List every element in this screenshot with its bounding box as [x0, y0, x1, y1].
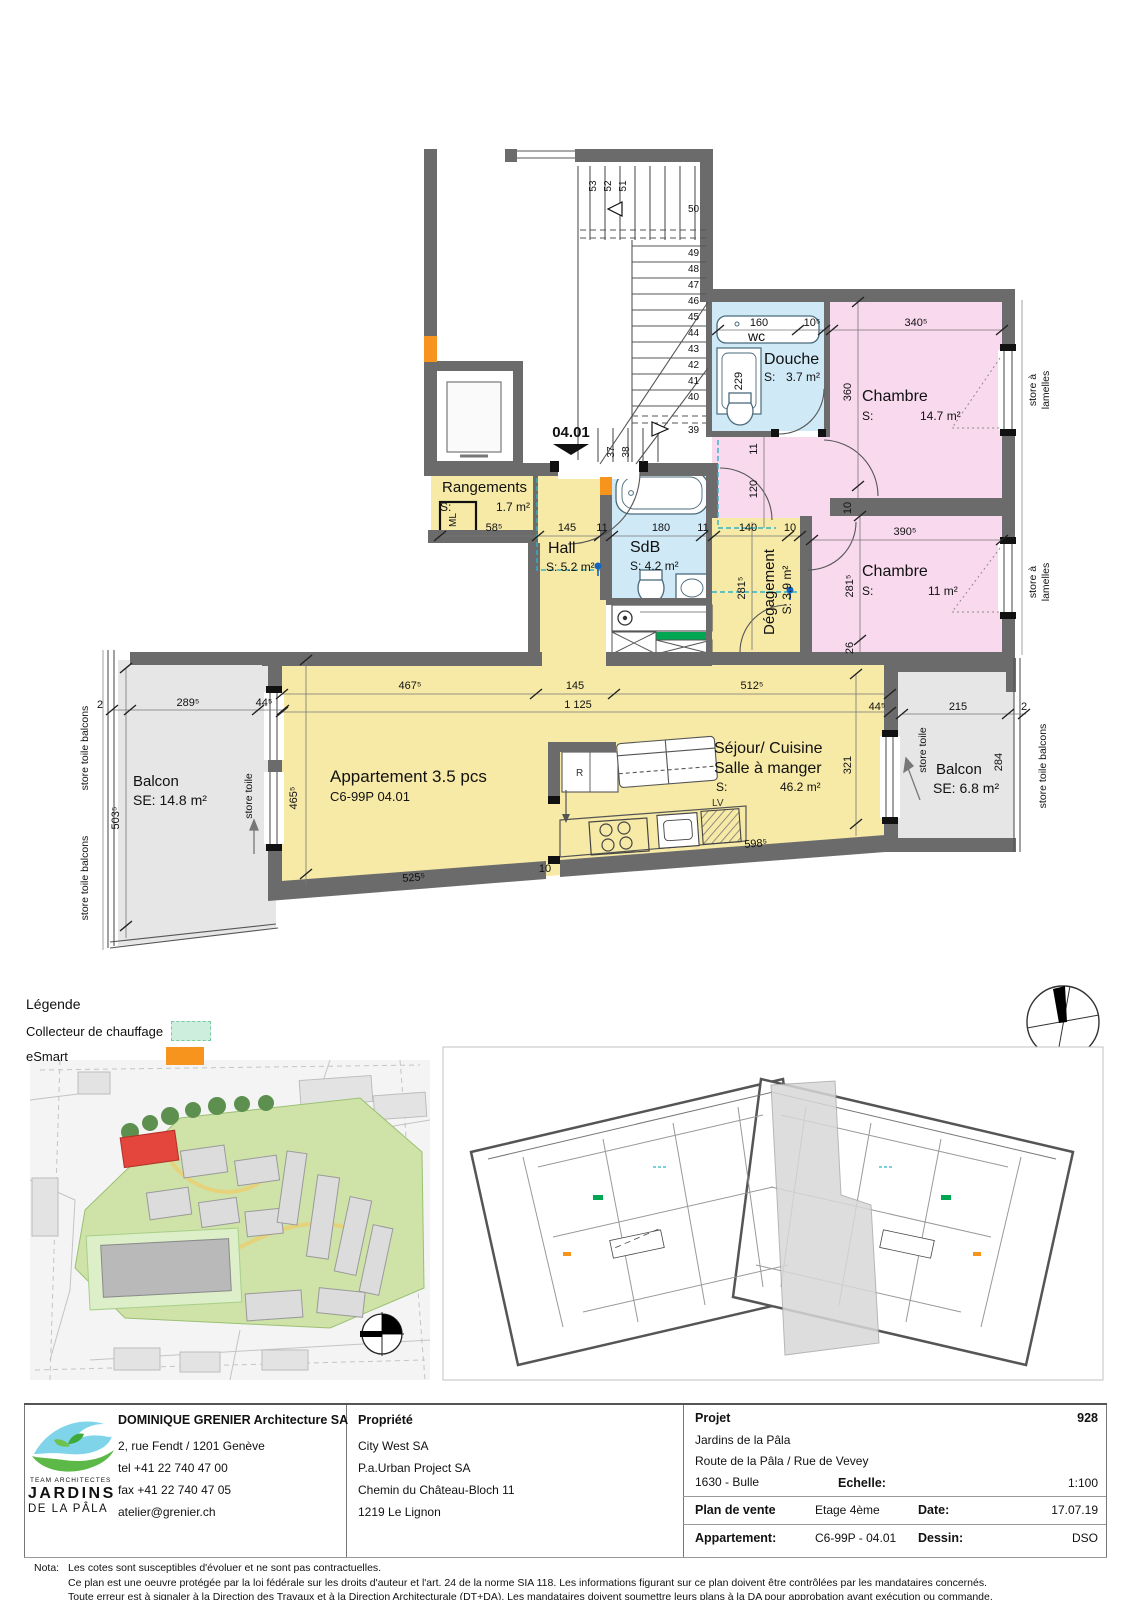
- architect-name: DOMINIQUE GRENIER Architecture SA: [118, 1414, 348, 1427]
- svg-text:45: 45: [688, 312, 700, 323]
- site-plan: [30, 1060, 430, 1380]
- etage-value: Etage 4ème: [815, 1504, 880, 1516]
- svg-text:43: 43: [688, 344, 700, 355]
- svg-text:Douche: Douche: [764, 351, 819, 368]
- hall-floor: [533, 463, 606, 655]
- owner-line: City West SA: [358, 1440, 428, 1452]
- svg-text:C6-99P 04.01: C6-99P 04.01: [330, 789, 410, 804]
- svg-text:44⁵: 44⁵: [869, 701, 886, 713]
- svg-text:Chambre: Chambre: [862, 563, 928, 580]
- date-value: 17.07.19: [1000, 1504, 1098, 1516]
- legend-title: Légende: [26, 996, 211, 1012]
- echelle-value: 1:100: [1000, 1477, 1098, 1489]
- svg-text:S:: S:: [764, 370, 775, 384]
- svg-text:42: 42: [688, 360, 700, 371]
- anteroom-floor: [712, 431, 830, 518]
- svg-text:503⁵: 503⁵: [110, 807, 122, 830]
- svg-text:10⁵: 10⁵: [804, 317, 821, 329]
- svg-text:40: 40: [688, 392, 700, 403]
- building-overview: [443, 1047, 1103, 1380]
- svg-text:S: 3.9 m²: S: 3.9 m²: [780, 566, 794, 615]
- svg-text:Dégagement: Dégagement: [761, 548, 778, 635]
- entry-arrow-icon: [553, 444, 589, 455]
- svg-text:Balcon: Balcon: [936, 761, 982, 778]
- architect-tel: tel +41 22 740 47 00: [118, 1462, 228, 1474]
- svg-text:TEAM ARCHITECTES: TEAM ARCHITECTES: [30, 1477, 111, 1484]
- esmart-marker: [424, 336, 437, 362]
- svg-text:44: 44: [688, 328, 700, 339]
- svg-text:lamelles: lamelles: [1040, 563, 1052, 602]
- svg-text:Salle à manger: Salle à manger: [714, 760, 822, 777]
- dessin-value: DSO: [1000, 1532, 1098, 1544]
- svg-text:229: 229: [733, 372, 745, 390]
- owner-line: P.a.Urban Project SA: [358, 1462, 471, 1474]
- svg-text:50: 50: [688, 204, 700, 215]
- svg-text:41: 41: [688, 376, 700, 387]
- dessin-label: Dessin:: [918, 1532, 963, 1545]
- legend-collecteur-label: Collecteur de chauffage: [26, 1024, 163, 1039]
- svg-text:26: 26: [844, 642, 856, 654]
- plan-type-label: Plan de vente: [695, 1504, 776, 1517]
- owner-line: 1219 Le Lignon: [358, 1506, 441, 1518]
- drawing-canvas: 04.01 50 49 48 47 46 45 44 43 42 41 40 3…: [0, 0, 1131, 1600]
- svg-text:598⁵: 598⁵: [744, 837, 768, 851]
- owner-title: Propriété: [358, 1414, 413, 1427]
- elevator-car: [447, 382, 501, 452]
- svg-text:S:: S:: [716, 780, 727, 794]
- svg-text:140: 140: [739, 522, 757, 534]
- svg-text:11: 11: [697, 522, 708, 534]
- unit-label: 04.01: [552, 424, 590, 441]
- svg-text:store toile balcons: store toile balcons: [1037, 724, 1049, 809]
- svg-text:2: 2: [97, 699, 103, 711]
- svg-text:360: 360: [842, 383, 854, 401]
- svg-text:145: 145: [566, 680, 584, 692]
- svg-text:49: 49: [688, 248, 700, 259]
- svg-text:289⁵: 289⁵: [177, 697, 200, 709]
- nota-line: Toute erreur est à signaler à la Directi…: [68, 1591, 1128, 1600]
- sofa: [616, 736, 717, 788]
- svg-text:11 m²: 11 m²: [928, 584, 958, 598]
- svg-text:467⁵: 467⁵: [399, 680, 422, 692]
- svg-text:3.7 m²: 3.7 m²: [786, 370, 820, 384]
- svg-text:120: 120: [748, 480, 760, 498]
- svg-text:14.7 m²: 14.7 m²: [920, 409, 961, 423]
- esmart-swatch: [166, 1047, 204, 1065]
- svg-text:JARDINS: JARDINS: [28, 1485, 116, 1502]
- svg-text:340⁵: 340⁵: [905, 317, 928, 329]
- svg-text:SE: 14.8 m²: SE: 14.8 m²: [133, 792, 207, 808]
- svg-text:SE: 6.8 m²: SE: 6.8 m²: [933, 780, 999, 796]
- architect-logo: TEAM ARCHITECTES JARDINS DE LA PÂLA: [28, 1410, 116, 1516]
- svg-text:1 125: 1 125: [564, 699, 592, 711]
- sink: [657, 813, 699, 849]
- svg-text:47: 47: [688, 280, 700, 291]
- project-number: 928: [1000, 1412, 1098, 1425]
- svg-text:store toile balcons: store toile balcons: [79, 836, 91, 921]
- plan-de-vente-page: 04.01 50 49 48 47 46 45 44 43 42 41 40 3…: [0, 0, 1131, 1600]
- dishwasher: [701, 809, 741, 845]
- svg-text:215: 215: [949, 701, 967, 713]
- project-line: Jardins de la Pâla: [695, 1434, 790, 1446]
- appartement-label: Appartement:: [695, 1532, 776, 1545]
- svg-text:11: 11: [596, 522, 607, 534]
- north-needle-icon: [1053, 986, 1067, 1023]
- svg-text:S:: S:: [440, 500, 451, 514]
- svg-text:525⁵: 525⁵: [402, 871, 426, 885]
- svg-text:10: 10: [784, 522, 796, 534]
- svg-text:S: 4.2 m²: S: 4.2 m²: [630, 559, 679, 573]
- svg-text:44⁵: 44⁵: [256, 697, 273, 709]
- svg-text:10: 10: [539, 863, 551, 875]
- svg-text:11: 11: [748, 443, 760, 454]
- svg-text:10: 10: [842, 502, 854, 514]
- parking-building: [101, 1239, 232, 1298]
- architect-email: atelier@grenier.ch: [118, 1506, 216, 1518]
- collecteur-strip: [656, 632, 712, 640]
- svg-text:390⁵: 390⁵: [894, 526, 917, 538]
- echelle-label: Echelle:: [838, 1477, 886, 1490]
- stair-arrow-up-icon: [608, 202, 622, 216]
- svg-text:321: 321: [842, 756, 854, 774]
- svg-text:S: 5.2 m²: S: 5.2 m²: [546, 560, 595, 574]
- esmart-marker: [600, 477, 612, 495]
- svg-text:46: 46: [688, 296, 700, 307]
- svg-text:lamelles: lamelles: [1040, 371, 1052, 410]
- nota-label: Nota:: [34, 1562, 59, 1574]
- svg-text:2: 2: [1021, 701, 1027, 713]
- svg-text:37: 37: [606, 446, 617, 458]
- architect-fax: fax +41 22 740 47 05: [118, 1484, 231, 1496]
- svg-text:Séjour/ Cuisine: Séjour/ Cuisine: [714, 740, 823, 757]
- svg-text:512⁵: 512⁵: [741, 680, 764, 692]
- svg-text:58⁵: 58⁵: [486, 522, 503, 534]
- svg-text:wc: wc: [747, 328, 765, 344]
- svg-text:Hall: Hall: [548, 540, 576, 557]
- svg-text:284: 284: [993, 753, 1005, 771]
- appartement-value: C6-99P - 04.01: [815, 1532, 896, 1544]
- svg-text:S:: S:: [862, 409, 873, 423]
- architect-address: 2, rue Fendt / 1201 Genève: [118, 1440, 265, 1452]
- legend: Légende Collecteur de chauffage eSmart: [26, 996, 211, 1065]
- project-title: Projet: [695, 1412, 730, 1425]
- svg-text:store toile: store toile: [243, 773, 255, 819]
- svg-text:Appartement 3.5 pcs: Appartement 3.5 pcs: [330, 767, 487, 786]
- project-line: 1630 - Bulle: [695, 1476, 759, 1488]
- svg-text:store à: store à: [1027, 566, 1039, 598]
- svg-text:store à: store à: [1027, 374, 1039, 406]
- svg-text:SdB: SdB: [630, 539, 660, 556]
- svg-text:Balcon: Balcon: [133, 773, 179, 790]
- nota-line: Ce plan est une oeuvre protégée par la l…: [68, 1577, 1128, 1589]
- svg-text:store toile balcons: store toile balcons: [79, 706, 91, 791]
- svg-text:180: 180: [652, 522, 670, 534]
- collecteur-swatch: [171, 1021, 211, 1041]
- svg-text:145: 145: [558, 522, 576, 534]
- svg-text:39: 39: [688, 425, 700, 436]
- svg-text:S:: S:: [862, 584, 873, 598]
- svg-text:46.2 m²: 46.2 m²: [780, 780, 821, 794]
- svg-text:DE LA PÂLA: DE LA PÂLA: [28, 1502, 108, 1515]
- svg-text:store toile: store toile: [917, 727, 929, 773]
- svg-text:ML: ML: [448, 513, 459, 527]
- svg-text:48: 48: [688, 264, 700, 275]
- svg-text:281⁵: 281⁵: [736, 577, 748, 600]
- owner-line: Chemin du Château-Bloch 11: [358, 1484, 515, 1496]
- svg-text:465⁵: 465⁵: [288, 787, 300, 810]
- svg-text:LV: LV: [712, 798, 724, 809]
- nota-line: Les cotes sont susceptibles d'évoluer et…: [68, 1562, 1118, 1574]
- project-line: Route de la Pâla / Rue de Vevey: [695, 1455, 868, 1467]
- svg-text:R: R: [576, 768, 583, 779]
- date-label: Date:: [918, 1504, 949, 1517]
- svg-text:52: 52: [603, 180, 614, 192]
- svg-text:53: 53: [588, 180, 599, 192]
- floor-plan: 04.01 50 49 48 47 46 45 44 43 42 41 40 3…: [79, 146, 1052, 950]
- svg-text:38: 38: [621, 446, 632, 458]
- svg-text:51: 51: [618, 180, 629, 192]
- legend-esmart-label: eSmart: [26, 1049, 158, 1064]
- svg-text:281⁵: 281⁵: [844, 575, 856, 598]
- svg-text:1.7 m²: 1.7 m²: [496, 500, 530, 514]
- svg-text:160: 160: [750, 317, 768, 329]
- svg-text:Chambre: Chambre: [862, 388, 928, 405]
- svg-text:Rangements: Rangements: [442, 479, 527, 496]
